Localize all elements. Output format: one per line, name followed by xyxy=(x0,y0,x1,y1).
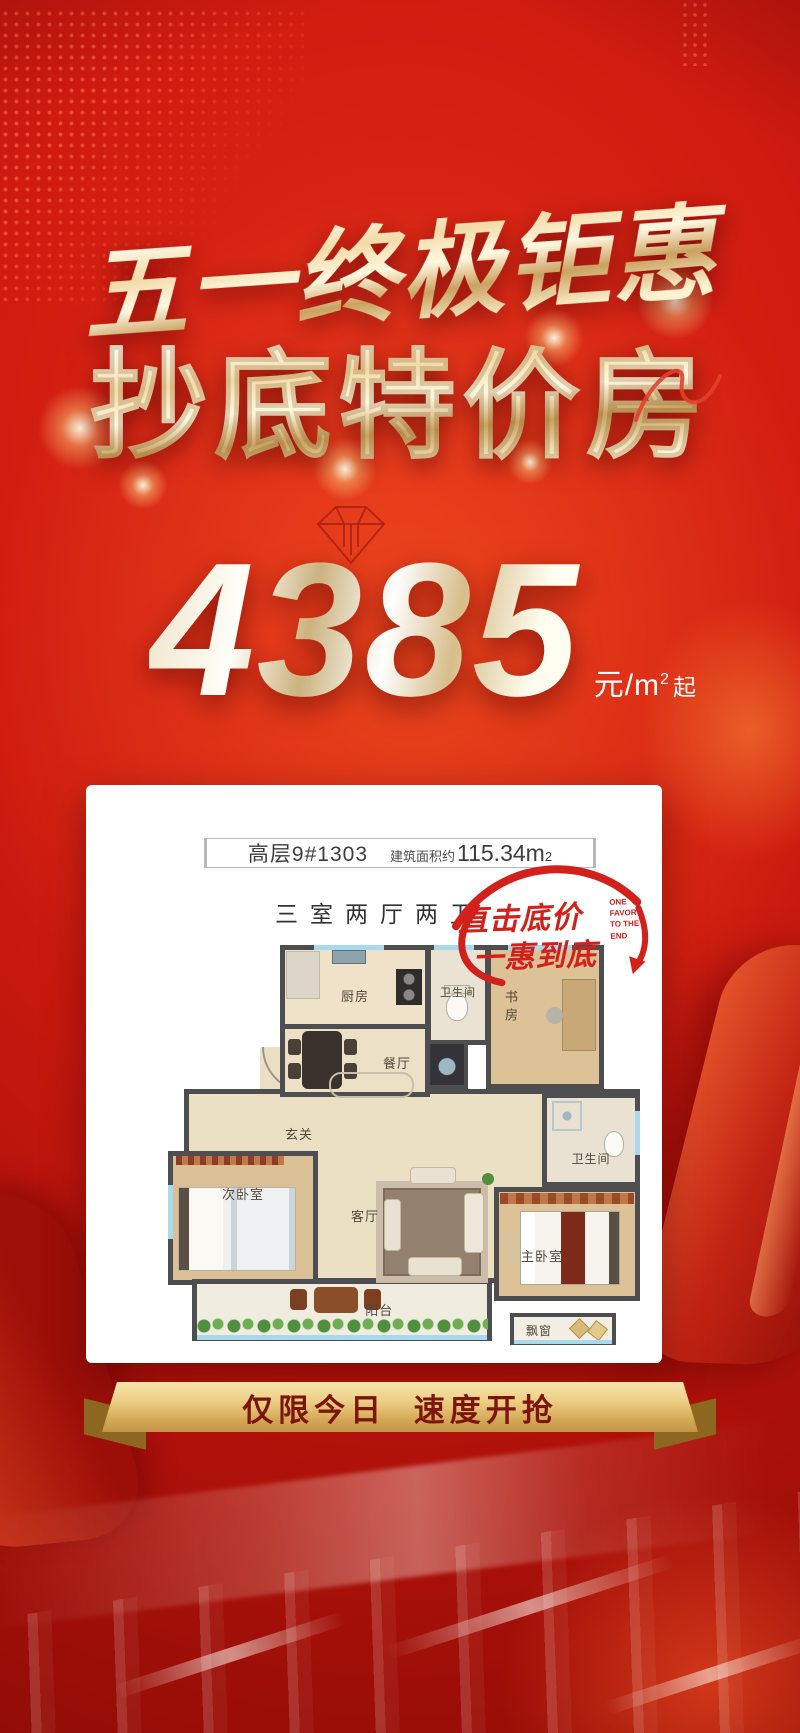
balcony-table xyxy=(314,1287,358,1313)
room-label-balcony: 阳台 xyxy=(365,1300,393,1319)
stamp-english: ONE FAVOR TO THE END xyxy=(609,895,657,941)
price-unit-suffix: 起 xyxy=(673,674,697,700)
banner-ribbon: 仅限今日 速度开抢 xyxy=(102,1382,698,1432)
window-mark xyxy=(314,945,384,950)
balcony-plants xyxy=(196,1317,488,1335)
window-mark xyxy=(635,1111,640,1155)
price-value: 4385 xyxy=(149,540,580,721)
window-mark xyxy=(197,1335,487,1340)
bottom-banner: 仅限今日 速度开抢 xyxy=(80,1380,720,1446)
room-label-second-bedroom: 次卧室 xyxy=(222,1184,264,1203)
price-unit-prefix: 元/m xyxy=(594,669,660,702)
room-label-master-bedroom: 主卧室 xyxy=(521,1246,563,1265)
room-label-hall: 玄关 xyxy=(285,1124,313,1143)
kitchen-counter xyxy=(286,951,320,999)
room-label-bay-window: 飘窗 xyxy=(526,1322,552,1339)
stamp-line2: 一惠到底 xyxy=(472,929,597,977)
unit-number: 高层9#1303 xyxy=(248,838,368,868)
price-unit-sup: 2 xyxy=(660,671,670,688)
price-unit: 元/m2起 xyxy=(594,660,697,704)
sofa-seat xyxy=(410,1167,456,1184)
shower-icon xyxy=(552,1101,582,1131)
price-stamp: 直击底价 一惠到底 ONE FAVOR TO THE END xyxy=(439,845,658,1004)
wardrobe xyxy=(500,1193,634,1204)
dining-chair xyxy=(288,1063,301,1079)
dot-pattern-top-right xyxy=(680,0,708,66)
room-label-bathroom-right: 卫生间 xyxy=(571,1150,610,1167)
kitchen-sink-icon xyxy=(332,950,366,964)
dining-chair xyxy=(288,1039,301,1055)
study-chair xyxy=(546,1007,563,1024)
hall-console xyxy=(329,1072,414,1098)
banner-text: 仅限今日 速度开抢 xyxy=(242,1385,558,1430)
stamp-en-line2: TO THE END xyxy=(610,919,639,940)
bedroom-carpet xyxy=(176,1156,284,1165)
stove-icon xyxy=(396,969,422,1005)
room-label-dining: 餐厅 xyxy=(383,1053,411,1072)
sofa-main xyxy=(464,1193,484,1253)
room-label-kitchen: 厨房 xyxy=(341,986,369,1005)
ribbon-fold-right-highlight xyxy=(746,1003,800,1317)
red-calligraphy-swoosh-icon xyxy=(628,348,728,443)
promo-poster: 五一终极钜惠 抄底特价房 4385 元/m2起 高层9#1303 建筑面积约 1… xyxy=(0,0,800,1733)
washing-machine-icon xyxy=(426,1040,468,1089)
plant-icon xyxy=(482,1173,494,1185)
window-mark xyxy=(168,1185,173,1239)
stamp-en-line1: ONE FAVOR xyxy=(609,897,637,918)
balcony-chair xyxy=(290,1289,307,1310)
unit-card: 高层9#1303 建筑面积约 115.34m2 三室两厅两卫 直击底价 一惠到底… xyxy=(86,785,662,1363)
room-label-living: 客厅 xyxy=(351,1206,379,1225)
window-mark xyxy=(514,1340,612,1344)
sofa-seat xyxy=(384,1199,401,1251)
sofa-seat xyxy=(408,1257,462,1276)
dining-chair xyxy=(344,1039,357,1055)
price-row: 4385 元/m2起 xyxy=(0,540,800,721)
